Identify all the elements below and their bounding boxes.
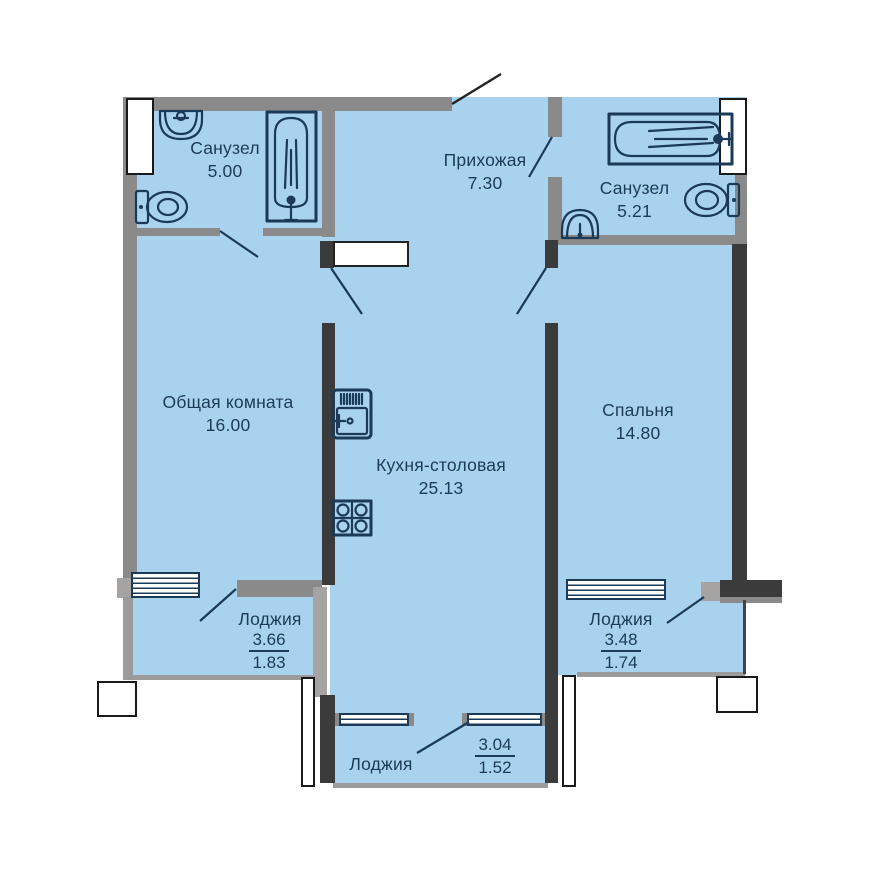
area-total: 3.04 [475, 736, 514, 757]
room-name: Прихожая [410, 149, 560, 172]
room-label-bath2: Санузел 5.21 [562, 177, 707, 223]
kitchen-sink-icon [331, 388, 373, 440]
loggia-right-areas: 3.48 1.74 [593, 631, 649, 672]
room-area: 5.00 [152, 160, 298, 183]
room-name: Лоджия [579, 608, 663, 631]
room-area: 7.30 [410, 172, 560, 195]
window-loggia-bottom-1 [339, 713, 409, 726]
toilet-icon [134, 188, 190, 226]
wall-loggia-bottom-left-col [320, 695, 335, 783]
pillar-bottom-right [716, 676, 758, 713]
wall-right-corner-block [701, 582, 721, 601]
wall-bath1-hall [322, 97, 335, 237]
room-label-bedroom: Спальня 14.80 [561, 399, 715, 445]
room-area: 16.00 [137, 414, 319, 437]
wall-hall-bath2-upper [548, 97, 562, 137]
wall-loggia-left-edge [123, 597, 133, 680]
loggia-left-label: Лоджия [228, 608, 312, 631]
room-area: 25.13 [348, 477, 534, 500]
wall-kitchen-bedroom [545, 323, 558, 783]
loggia-left-areas: 3.66 1.83 [241, 631, 297, 672]
room-name: Лоджия [339, 753, 423, 776]
wall-kitchen-door-block [320, 241, 334, 268]
loggia-bottom-label: Лоджия [339, 753, 423, 776]
wall-bath1-bottom [123, 228, 220, 236]
room-name: Спальня [561, 399, 715, 422]
room-name: Санузел [562, 177, 707, 200]
wall-right-t-strip [720, 597, 782, 603]
area-total: 3.48 [601, 631, 640, 652]
pillar-bottom-left [97, 681, 137, 717]
area-coef: 1.83 [252, 652, 285, 672]
room-name: Общая комната [137, 391, 319, 414]
wall-loggia-right-edge [743, 600, 746, 674]
floor-plan: Санузел 5.00 Прихожая 7.30 Санузел 5.21 … [0, 0, 880, 880]
room-label-hall: Прихожая 7.30 [410, 149, 560, 195]
room-name: Санузел [152, 137, 298, 160]
room-label-living: Общая комната 16.00 [137, 391, 319, 437]
window-bedroom [566, 579, 666, 600]
window-loggia-bottom-2 [467, 713, 542, 726]
wall-bedroom-door-block [545, 240, 558, 268]
wall-loggia-left-bottom [133, 675, 315, 680]
window-living [131, 572, 200, 598]
room-label-kitchen: Кухня-столовая 25.13 [348, 454, 534, 500]
wall-living-loggia [237, 580, 322, 597]
room-area: 14.80 [561, 422, 715, 445]
loggia-right-label: Лоджия [579, 608, 663, 631]
bathtub-icon [607, 112, 734, 166]
pillar-top-left [126, 98, 154, 175]
wall-mid-column-left [313, 587, 327, 697]
wall-right-bedroom [732, 244, 747, 582]
room-name: Лоджия [228, 608, 312, 631]
room-area: 5.21 [562, 200, 707, 223]
wall-living-kitchen [322, 323, 335, 585]
area-coef: 1.74 [604, 652, 637, 672]
column-mid-left [301, 677, 315, 787]
stove-icon [331, 499, 373, 537]
door-leaf-kitchen [333, 241, 409, 267]
wall-loggia-bottom-edge [333, 783, 548, 788]
room-label-bath1: Санузел 5.00 [152, 137, 298, 183]
wall-top [128, 97, 452, 111]
area-total: 3.66 [249, 631, 288, 652]
area-coef: 1.52 [478, 757, 511, 777]
room-name: Кухня-столовая [348, 454, 534, 477]
column-mid-right [562, 675, 576, 787]
wall-right-t-bar [720, 580, 782, 597]
loggia-bottom-areas: 3.04 1.52 [467, 736, 523, 777]
